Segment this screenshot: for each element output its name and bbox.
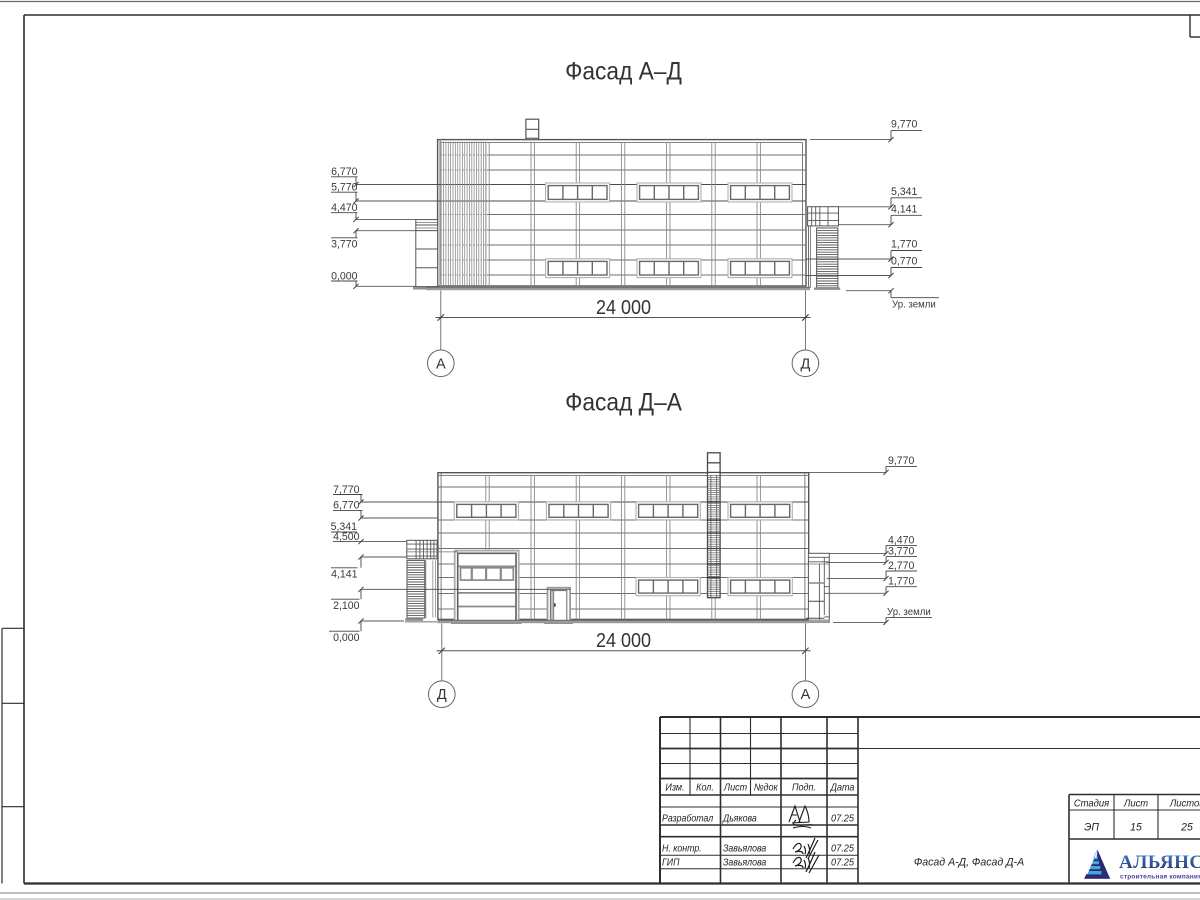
- svg-text:Стадия: Стадия: [1074, 798, 1110, 810]
- svg-text:Кол.: Кол.: [696, 782, 714, 794]
- svg-text:1,770: 1,770: [888, 575, 914, 587]
- svg-text:24 000: 24 000: [596, 630, 651, 652]
- svg-text:Фасад А–Д: Фасад А–Д: [565, 58, 682, 86]
- svg-text:5,770: 5,770: [331, 181, 357, 193]
- svg-text:Подп.: Подп.: [792, 782, 816, 794]
- svg-text:4,141: 4,141: [891, 203, 917, 215]
- svg-text:3,770: 3,770: [888, 545, 914, 557]
- svg-text:А: А: [436, 356, 446, 372]
- svg-text:Фасад А-Д, Фасад Д-А: Фасад А-Д, Фасад Д-А: [914, 856, 1024, 868]
- svg-text:0,000: 0,000: [331, 270, 357, 282]
- svg-text:А: А: [801, 687, 811, 703]
- svg-text:Завьялова: Завьялова: [723, 856, 766, 868]
- svg-text:6,770: 6,770: [333, 499, 359, 511]
- svg-text:4,470: 4,470: [331, 202, 357, 214]
- svg-text:0,000: 0,000: [333, 632, 359, 644]
- svg-text:Лист: Лист: [1123, 798, 1148, 810]
- svg-text:Изм.: Изм.: [665, 782, 684, 794]
- svg-text:Ур. земли: Ур. земли: [887, 607, 931, 618]
- svg-text:25: 25: [1180, 821, 1193, 833]
- svg-text:9,770: 9,770: [888, 455, 914, 467]
- svg-text:15: 15: [1130, 821, 1142, 833]
- svg-text:Д: Д: [437, 687, 447, 703]
- svg-text:Завьялова: Завьялова: [723, 842, 766, 854]
- svg-text:07.25: 07.25: [831, 843, 855, 854]
- svg-text:Дата: Дата: [830, 782, 855, 794]
- svg-text:ЭП: ЭП: [1084, 821, 1099, 833]
- svg-text:Д: Д: [800, 356, 810, 372]
- svg-text:6,770: 6,770: [331, 166, 357, 178]
- svg-text:4,141: 4,141: [331, 568, 357, 580]
- svg-text:2,770: 2,770: [888, 560, 914, 572]
- svg-text:24 000: 24 000: [596, 297, 651, 319]
- svg-text:0,770: 0,770: [891, 255, 917, 267]
- svg-text:Разработал: Разработал: [662, 812, 714, 824]
- svg-text:Лист: Лист: [723, 782, 747, 794]
- svg-text:АЛЬЯНС: АЛЬЯНС: [1119, 852, 1200, 873]
- svg-text:07.25: 07.25: [831, 857, 855, 868]
- svg-text:9,770: 9,770: [891, 118, 917, 130]
- svg-text:2,100: 2,100: [333, 600, 359, 612]
- svg-text:Ур. земли: Ур. земли: [892, 299, 936, 310]
- svg-text:3,770: 3,770: [331, 238, 357, 250]
- svg-text:1,770: 1,770: [891, 238, 917, 250]
- svg-text:Дьякова: Дьякова: [722, 812, 757, 824]
- svg-text:5,341: 5,341: [891, 185, 917, 197]
- svg-text:Н. контр.: Н. контр.: [662, 842, 702, 854]
- svg-text:07.25: 07.25: [831, 813, 855, 824]
- svg-text:строительная компания: строительная компания: [1120, 874, 1200, 881]
- svg-text:Листов: Листов: [1169, 798, 1200, 810]
- svg-text:№док: №док: [754, 782, 778, 794]
- svg-text:ГИП: ГИП: [662, 856, 680, 868]
- svg-text:Фасад Д–А: Фасад Д–А: [565, 389, 682, 417]
